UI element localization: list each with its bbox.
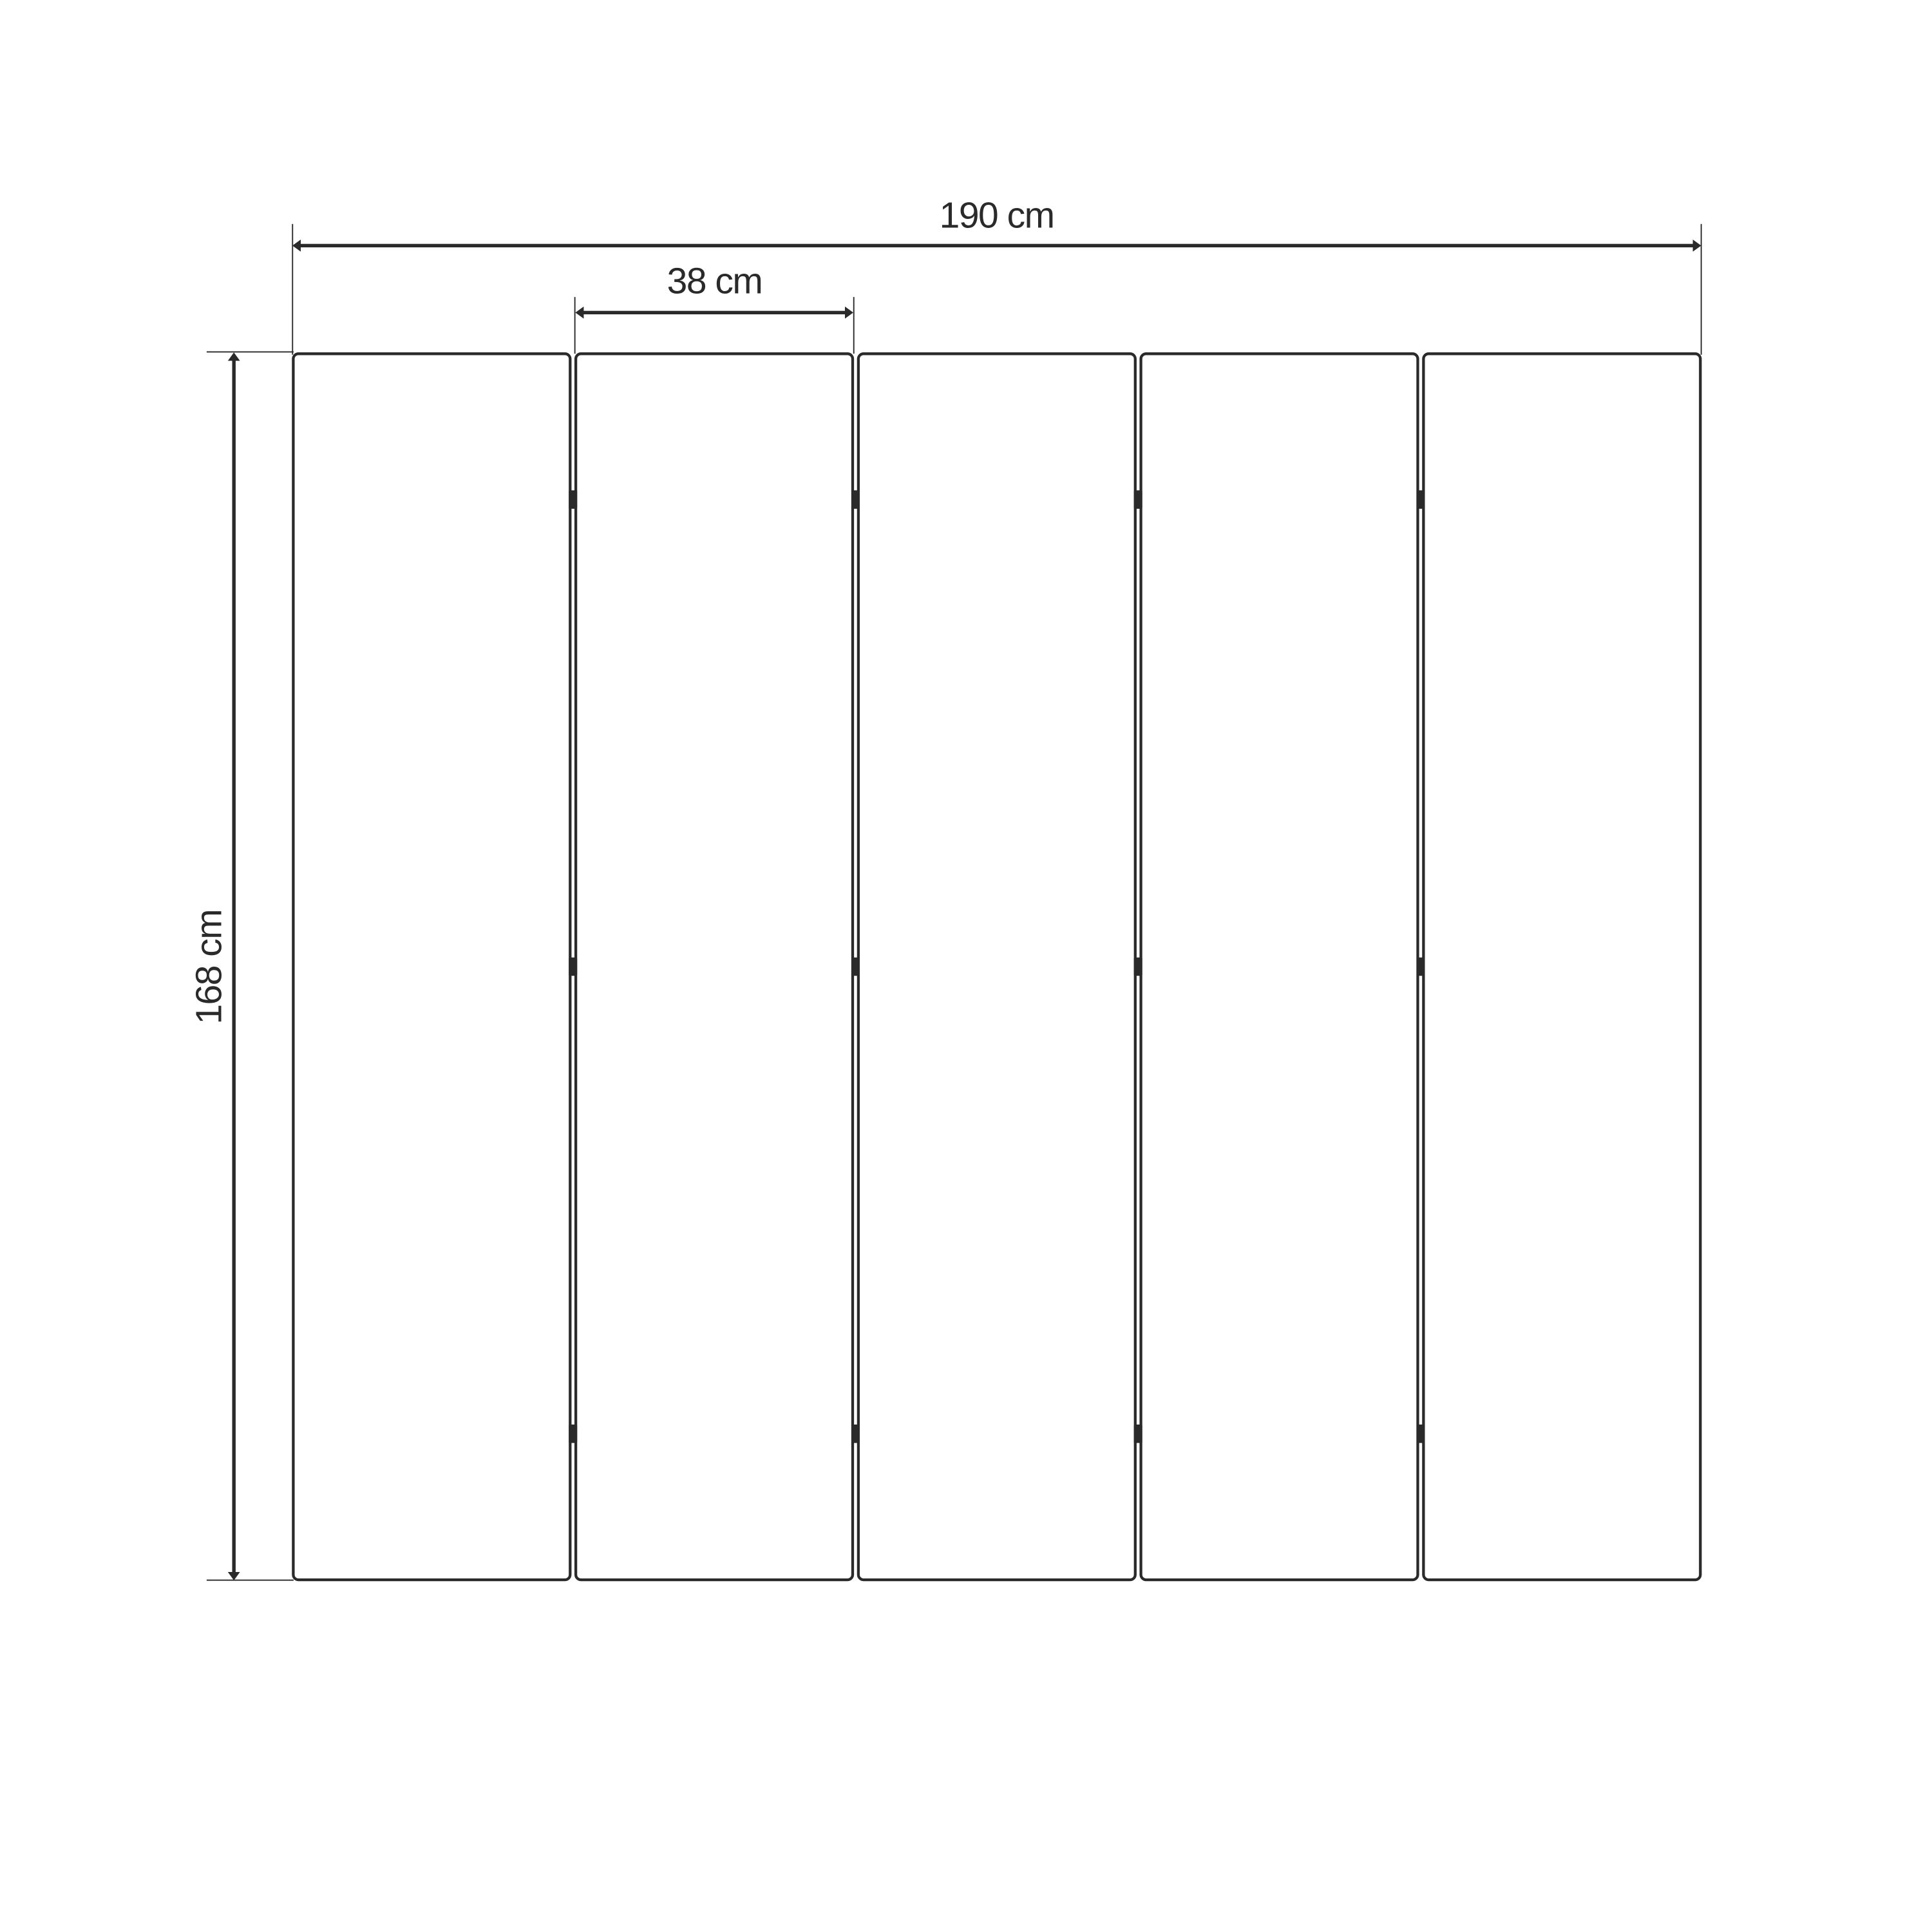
svg-text:168 cm: 168 cm [189,910,230,1025]
svg-text:38 cm: 38 cm [667,260,762,301]
svg-text:190 cm: 190 cm [940,194,1054,236]
